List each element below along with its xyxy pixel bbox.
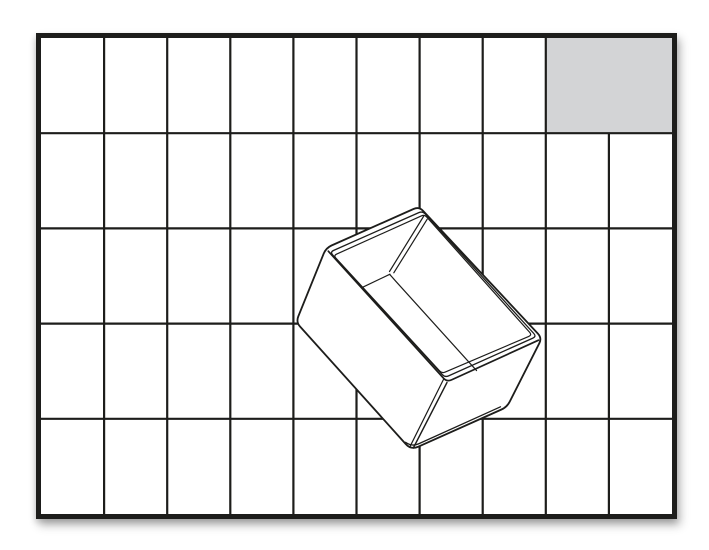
highlight-cell (546, 38, 672, 133)
diagram-canvas (0, 0, 709, 550)
size-grid-illustration (0, 0, 709, 550)
